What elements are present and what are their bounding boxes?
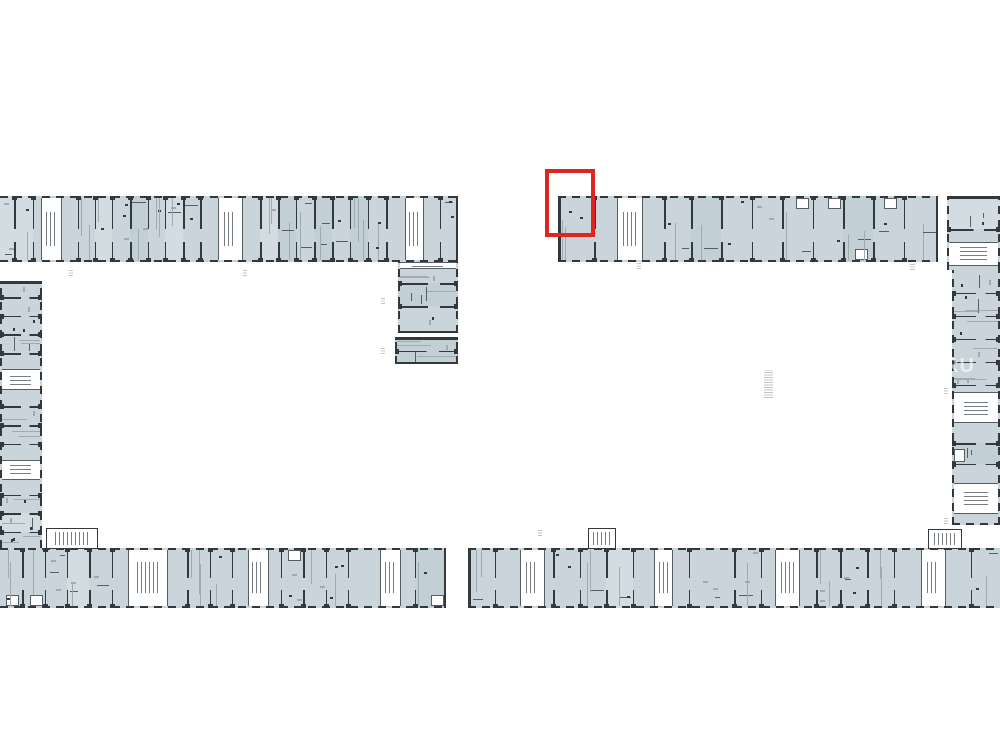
fixture-speck xyxy=(853,592,856,594)
fixture-speck xyxy=(960,332,962,335)
fixture-speck xyxy=(568,566,571,568)
unit-divider-wall xyxy=(368,196,370,262)
furniture-line xyxy=(168,212,181,213)
subroom xyxy=(884,198,897,209)
partition-line xyxy=(271,198,272,224)
facade-edge-dashed xyxy=(0,260,458,262)
facade-edge-dashed xyxy=(398,262,400,333)
partition-line xyxy=(10,562,11,606)
partition-line xyxy=(138,229,139,260)
facade-edge-dashed xyxy=(456,262,458,333)
facade-edge-dashed xyxy=(952,270,954,525)
fixture-speck xyxy=(982,222,984,225)
partition-line xyxy=(675,223,676,260)
stair-treads xyxy=(964,399,988,415)
furniture-line xyxy=(322,223,330,224)
stair-treads xyxy=(409,212,418,246)
stair-core xyxy=(380,550,400,606)
facade-edge-dashed xyxy=(0,196,458,198)
partition-line xyxy=(954,311,978,312)
stair-treads xyxy=(927,562,939,593)
stair-treads xyxy=(252,562,263,593)
fixture-speck xyxy=(668,223,671,225)
partition-line xyxy=(829,581,830,606)
unit-divider-wall xyxy=(112,196,114,262)
stair-treads xyxy=(526,562,539,593)
room-label-speck xyxy=(23,287,25,292)
furniture-line xyxy=(739,595,753,596)
unit-divider-wall xyxy=(67,548,69,608)
partition-line xyxy=(587,562,588,606)
unit-divider-wall xyxy=(112,548,114,608)
unit-divider-wall xyxy=(0,495,42,497)
stair-treads xyxy=(46,212,56,246)
furniture-line xyxy=(32,518,33,529)
facade-edge-dashed xyxy=(947,196,949,270)
stair-treads xyxy=(934,533,956,546)
furniture-line xyxy=(978,299,979,313)
subroom xyxy=(828,198,841,209)
unit-divider-wall xyxy=(165,196,167,262)
partition-line xyxy=(89,225,90,260)
partition-line xyxy=(2,419,27,420)
partition-line xyxy=(289,223,290,260)
end-wall xyxy=(952,523,1000,525)
unit-divider-wall xyxy=(395,351,458,353)
unit-divider-wall xyxy=(326,548,328,608)
partition-line xyxy=(72,583,73,606)
survey-mark xyxy=(381,348,385,354)
furniture-line xyxy=(411,293,412,301)
furniture-line xyxy=(983,213,984,218)
unit-divider-wall xyxy=(894,548,896,608)
stair-treads xyxy=(10,464,31,474)
stair-treads xyxy=(964,490,988,506)
subroom xyxy=(855,249,868,260)
fixture-speck xyxy=(125,204,128,206)
unit-divider-wall xyxy=(314,196,316,262)
stair-treads xyxy=(385,562,395,593)
room-label-speck xyxy=(10,518,12,523)
unit-divider-wall xyxy=(278,196,280,262)
room-label-speck xyxy=(143,228,148,230)
unit-divider-wall xyxy=(752,196,754,262)
end-wall xyxy=(468,548,471,608)
facade-edge-dashed xyxy=(0,606,446,608)
stair-treads xyxy=(224,212,236,246)
fixture-speck xyxy=(741,201,744,203)
room-label-speck xyxy=(6,498,8,503)
partition-line xyxy=(311,550,312,584)
unit-divider-wall xyxy=(386,196,388,262)
stair-annex xyxy=(588,528,616,549)
stair-core xyxy=(41,198,62,260)
unit-divider-wall xyxy=(232,548,234,608)
room-label-speck xyxy=(9,248,14,250)
facade-edge-dashed xyxy=(468,606,1000,608)
partition-line xyxy=(820,550,821,584)
unit-divider-wall xyxy=(22,548,24,608)
stair-treads xyxy=(137,562,158,593)
partition-line xyxy=(417,356,456,357)
end-wall xyxy=(456,196,459,262)
unit-divider-wall xyxy=(952,293,1000,295)
fixture-speck xyxy=(219,556,222,558)
fixture-speck xyxy=(335,566,338,568)
furniture-line xyxy=(14,337,15,351)
unit-divider-wall xyxy=(761,548,763,608)
unit-divider-wall xyxy=(952,316,1000,318)
unit-divider-wall xyxy=(210,548,212,608)
stair-treads xyxy=(623,212,637,246)
unit-divider-wall xyxy=(148,196,150,262)
end-wall xyxy=(398,331,458,334)
unit-divider-wall xyxy=(721,196,723,262)
partition-line xyxy=(172,198,173,226)
partition-line xyxy=(320,226,321,260)
room-label-speck xyxy=(713,588,718,590)
fixture-speck xyxy=(884,223,887,225)
room-tint xyxy=(165,196,183,262)
partition-line xyxy=(199,550,200,594)
partition-line xyxy=(848,234,849,260)
stair-annex xyxy=(928,529,962,549)
stair-treads xyxy=(593,532,611,545)
partition-line xyxy=(967,321,998,322)
building-strip-right-corner xyxy=(947,196,1000,270)
furniture-line xyxy=(97,585,109,586)
fixture-speck xyxy=(13,328,15,331)
room-label-speck xyxy=(429,320,431,325)
unit-divider-wall xyxy=(813,196,815,262)
partition-line xyxy=(159,198,160,237)
furniture-line xyxy=(845,579,851,580)
partition-line xyxy=(864,231,865,260)
room-label-speck xyxy=(989,280,991,285)
end-wall xyxy=(395,337,458,340)
partition-line xyxy=(335,574,336,606)
room-label-speck xyxy=(446,345,448,350)
stair-core xyxy=(2,369,40,390)
partition-line xyxy=(966,310,998,311)
partition-line xyxy=(19,340,40,341)
fixture-speck xyxy=(961,284,963,287)
unit-divider-wall xyxy=(816,548,818,608)
unit-divider-wall xyxy=(873,196,875,262)
room-tint xyxy=(67,548,89,608)
room-label-speck xyxy=(4,203,9,205)
furniture-line xyxy=(415,351,416,362)
unit-divider-wall xyxy=(183,196,185,262)
furniture-line xyxy=(715,597,720,598)
furniture-line xyxy=(60,555,65,556)
furniture-line xyxy=(282,230,293,231)
unit-divider-wall xyxy=(553,548,555,608)
survey-mark xyxy=(538,530,542,536)
unit-divider-wall xyxy=(952,464,1000,466)
stair-treads xyxy=(412,264,443,267)
partition-line xyxy=(363,220,364,260)
end-wall xyxy=(936,196,939,262)
stair-core xyxy=(654,550,673,606)
partition-line xyxy=(481,550,482,577)
furniture-line xyxy=(426,287,427,301)
furniture-line xyxy=(979,275,980,288)
unit-divider-wall xyxy=(971,548,973,608)
room-label-speck xyxy=(51,560,56,562)
unit-divider-wall xyxy=(0,425,42,427)
unit-divider-wall xyxy=(0,444,42,446)
unit-divider-wall xyxy=(843,196,845,262)
unit-divider-wall xyxy=(95,196,97,262)
building-strip-left-bottom xyxy=(0,548,446,608)
room-tint xyxy=(14,196,33,262)
partition-line xyxy=(923,224,924,260)
unit-divider-wall xyxy=(689,548,691,608)
room-label-speck xyxy=(703,581,708,583)
partition-line xyxy=(2,523,25,524)
unit-divider-wall xyxy=(348,548,350,608)
unit-divider-wall xyxy=(45,548,47,608)
room-tint xyxy=(314,196,332,262)
stair-core xyxy=(921,550,945,606)
building-strip-left-top xyxy=(0,196,458,262)
stair-treads xyxy=(55,532,90,545)
furniture-line xyxy=(704,248,718,249)
partition-line xyxy=(27,232,28,260)
partition-line xyxy=(986,576,987,606)
furniture-line xyxy=(29,343,30,351)
room-label-speck xyxy=(433,276,435,281)
partition-line xyxy=(18,436,40,437)
unit-divider-wall xyxy=(782,196,784,262)
partition-line xyxy=(269,198,270,234)
stair-treads xyxy=(659,562,668,593)
survey-mark xyxy=(910,264,915,270)
unit-divider-wall xyxy=(332,196,334,262)
unit-divider-wall xyxy=(495,548,497,608)
partition-line xyxy=(300,212,301,260)
unit-divider-wall xyxy=(303,548,305,608)
unit-divider-wall xyxy=(0,316,42,318)
subroom xyxy=(954,449,965,462)
partition-line xyxy=(400,277,430,278)
partition-line xyxy=(397,341,421,342)
unit-divider-wall xyxy=(0,532,42,534)
watermark: RU xyxy=(944,356,975,376)
facade-edge-dashed xyxy=(395,337,397,364)
unit-divider-wall xyxy=(0,334,42,336)
partition-line xyxy=(427,291,456,292)
unit-divider-wall xyxy=(440,196,442,262)
room-tint xyxy=(0,196,14,262)
partition-line xyxy=(358,198,359,242)
partition-line xyxy=(476,550,477,592)
partition-line xyxy=(33,550,34,595)
furniture-line xyxy=(923,232,936,233)
stair-core xyxy=(2,460,40,480)
unit-divider-wall xyxy=(691,196,693,262)
unit-divider-wall xyxy=(664,196,666,262)
unit-divider-wall xyxy=(260,196,262,262)
unit-divider-wall xyxy=(734,548,736,608)
unit-divider-wall xyxy=(867,548,869,608)
partition-line xyxy=(156,198,157,230)
unit-divider-wall xyxy=(281,548,283,608)
partition-line xyxy=(378,224,379,260)
furniture-line xyxy=(989,553,998,554)
subroom xyxy=(30,595,43,606)
stair-treads xyxy=(10,374,31,385)
furniture-line xyxy=(682,248,689,249)
fixture-speck xyxy=(856,567,859,569)
furniture-line xyxy=(970,216,971,227)
partition-line xyxy=(21,343,40,344)
furniture-line xyxy=(305,203,312,204)
stair-core xyxy=(954,392,998,423)
partition-line xyxy=(881,567,882,606)
unit-divider-wall xyxy=(0,353,42,355)
unit-divider-wall xyxy=(33,196,35,262)
partition-line xyxy=(619,567,620,606)
room-label-speck xyxy=(769,218,774,220)
unit-divider-wall xyxy=(296,196,298,262)
partition-line xyxy=(786,212,787,260)
selection-highlight[interactable] xyxy=(545,169,595,237)
fixture-speck xyxy=(289,595,292,597)
room-label-speck xyxy=(820,600,825,602)
fixture-speck xyxy=(556,554,559,556)
room-label-speck xyxy=(978,352,980,357)
subroom xyxy=(431,595,444,606)
fixture-speck xyxy=(965,296,967,299)
room-label-speck xyxy=(56,589,61,591)
unit-divider-wall xyxy=(14,196,16,262)
partition-line xyxy=(23,536,40,537)
end-wall xyxy=(395,362,458,365)
survey-mark xyxy=(381,298,385,304)
partition-line xyxy=(14,499,40,500)
fixture-speck xyxy=(424,572,427,574)
room-label-speck xyxy=(33,411,35,416)
unit-divider-wall xyxy=(398,283,458,285)
partition-line xyxy=(701,225,702,260)
facade-edge-dashed xyxy=(558,260,938,262)
fixture-speck xyxy=(330,597,333,599)
facade-edge-dashed xyxy=(40,281,42,548)
room-label-speck xyxy=(297,599,302,601)
building-strip-right-top xyxy=(558,196,938,262)
room-tint xyxy=(691,196,721,262)
unit-divider-wall xyxy=(904,196,906,262)
fixture-speck xyxy=(449,201,452,203)
partition-line xyxy=(747,563,748,606)
unit-divider-wall xyxy=(398,306,458,308)
furniture-line xyxy=(590,590,604,591)
partition-line xyxy=(12,431,40,432)
furniture-line xyxy=(802,251,811,252)
fixture-speck xyxy=(101,228,104,230)
facade-edge-dashed xyxy=(558,196,938,198)
room-label-speck xyxy=(757,206,762,208)
stair-treads xyxy=(960,247,987,259)
unit-divider-wall xyxy=(633,548,635,608)
stair-core xyxy=(218,198,243,260)
furniture-line xyxy=(971,450,972,455)
stair-core xyxy=(617,198,644,260)
end-wall xyxy=(444,548,447,608)
unit-divider-wall xyxy=(187,548,189,608)
furniture-line xyxy=(132,202,146,203)
unit-divider-wall xyxy=(89,548,91,608)
fixture-speck xyxy=(13,538,15,541)
partition-line xyxy=(191,550,192,578)
stair-core xyxy=(520,550,545,606)
partition-line xyxy=(397,345,431,346)
room-label-speck xyxy=(320,586,325,588)
stair-core xyxy=(949,242,998,266)
furniture-line xyxy=(967,448,968,458)
furniture-line xyxy=(5,254,12,255)
fixture-speck xyxy=(451,216,454,218)
stair-core xyxy=(248,550,269,606)
unit-divider-wall xyxy=(840,548,842,608)
fixture-speck xyxy=(341,565,344,567)
fixture-speck xyxy=(376,247,379,249)
end-wall xyxy=(0,281,42,284)
building-strip-right-wing xyxy=(952,270,1000,525)
unit-divider-wall xyxy=(952,385,1000,387)
partition-line xyxy=(216,584,217,606)
unit-divider-wall xyxy=(350,196,352,262)
room-label-speck xyxy=(124,238,129,240)
facade-edge-dashed xyxy=(468,548,1000,550)
partition-line xyxy=(2,542,19,543)
unit-divider-wall xyxy=(200,196,202,262)
survey-mark xyxy=(243,270,247,276)
unit-divider-wall xyxy=(0,406,42,408)
fixture-speck xyxy=(976,588,979,590)
survey-mark xyxy=(637,263,641,269)
fixture-speck xyxy=(627,596,630,598)
facade-edge-dashed xyxy=(456,337,458,364)
stair-core xyxy=(128,550,168,606)
unit-divider-wall xyxy=(606,548,608,608)
survey-mark xyxy=(764,370,773,398)
survey-mark xyxy=(69,270,73,276)
furniture-line xyxy=(473,599,483,600)
room-label-speck xyxy=(745,581,750,583)
room-label-speck xyxy=(753,552,758,554)
subroom xyxy=(288,550,301,561)
furniture-line xyxy=(185,205,198,206)
building-strip-right-bottom xyxy=(468,548,1000,608)
furniture-line xyxy=(336,241,348,242)
stair-treads xyxy=(781,562,794,593)
unit-divider-wall xyxy=(415,548,417,608)
partition-line xyxy=(98,198,99,222)
furniture-line xyxy=(301,247,312,248)
fixture-speck xyxy=(837,240,840,242)
subroom xyxy=(6,595,19,606)
fixture-speck xyxy=(432,317,434,320)
room-tint xyxy=(947,196,1000,229)
end-wall xyxy=(947,196,1000,199)
fixture-speck xyxy=(23,329,25,332)
stair-core xyxy=(954,483,998,514)
fixture-speck xyxy=(177,203,180,205)
fixture-speck xyxy=(190,218,193,220)
